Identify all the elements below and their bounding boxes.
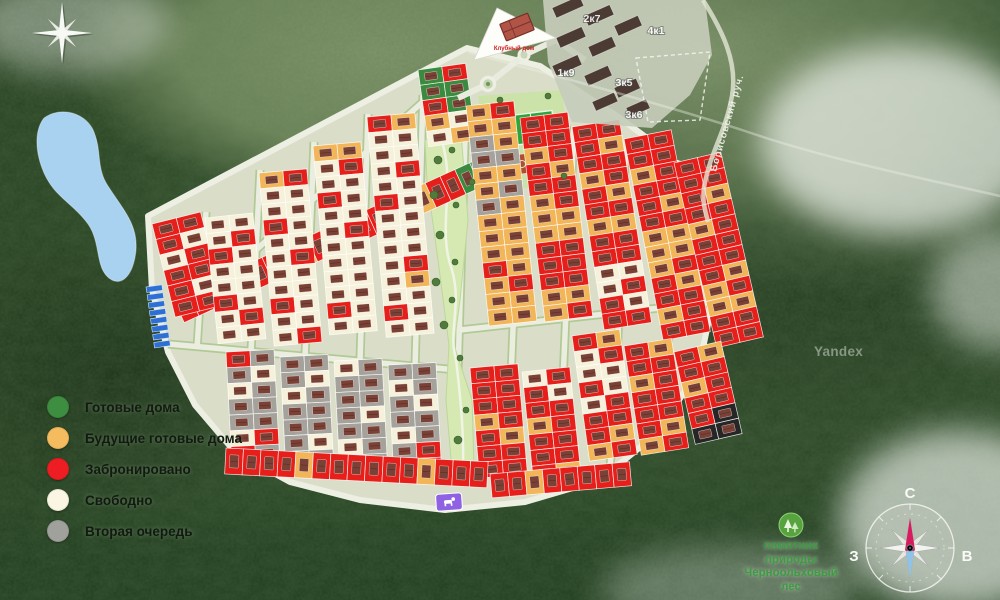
compass-north-label: С	[905, 485, 916, 502]
legend-label: Готовые дома	[85, 400, 180, 415]
legend-item: Свободно	[47, 489, 242, 511]
building-label: 3к5	[616, 77, 633, 89]
urban-quarter: 2к74к11к93к53к6	[543, 0, 712, 128]
dog-area-marker[interactable]	[435, 493, 462, 512]
building-label: 4к1	[648, 25, 665, 37]
tree-icon	[434, 156, 442, 164]
building-label: 3к6	[626, 109, 643, 121]
tree-icon	[436, 231, 444, 239]
legend-item: Готовые дома	[47, 396, 242, 418]
map-stage: 2к74к11к93к53к6 Борисовский руч.	[0, 0, 1000, 600]
lot-block	[418, 63, 476, 146]
tree-icon	[430, 191, 438, 199]
nature-line: памятник	[731, 540, 851, 554]
legend: Готовые домаБудущие готовые домаЗабронир…	[47, 396, 242, 551]
tree-icon	[454, 436, 462, 444]
pond	[37, 112, 136, 282]
tree-icon	[497, 97, 503, 103]
park-icon	[778, 512, 804, 538]
legend-label: Забронировано	[85, 462, 191, 477]
legend-label: Свободно	[85, 493, 153, 508]
legend-label: Вторая очередь	[85, 524, 193, 539]
tree-icon	[561, 173, 567, 179]
legend-swatch	[47, 396, 69, 418]
legend-swatch	[47, 520, 69, 542]
tree-icon	[457, 355, 463, 361]
compass-star-icon	[32, 2, 94, 65]
legend-swatch	[47, 427, 69, 449]
tree-icon	[545, 93, 551, 99]
club-house-callout[interactable]: Клубный дом	[474, 8, 556, 60]
tree-icon	[463, 407, 469, 413]
tree-icon	[449, 297, 455, 303]
compass-rose: С З В	[849, 485, 972, 592]
legend-item: Будущие готовые дома	[47, 427, 242, 449]
tree-icon	[453, 202, 459, 208]
stream-label: Борисовский руч.	[708, 73, 746, 173]
nature-line: лес	[731, 581, 851, 595]
lot-block	[280, 354, 334, 467]
club-house-label: Клубный дом	[494, 45, 535, 52]
tree-icon	[440, 321, 448, 329]
nature-line: природы	[731, 554, 851, 568]
tree-icon	[449, 147, 455, 153]
tree-icon	[469, 179, 475, 185]
nature-monument-label: памятник природы Черноольховый лес	[731, 512, 851, 594]
nature-line: Черноольховый	[731, 567, 851, 581]
tree-icon	[452, 259, 458, 265]
yandex-watermark: Yandex	[814, 344, 863, 359]
legend-item: Забронировано	[47, 458, 242, 480]
legend-swatch	[47, 458, 69, 480]
tree-icon	[432, 278, 440, 286]
compass-east-label: В	[962, 548, 973, 565]
legend-label: Будущие готовые дома	[85, 431, 242, 446]
legend-item: Вторая очередь	[47, 520, 242, 542]
legend-swatch	[47, 489, 69, 511]
building-label: 2к7	[584, 13, 601, 25]
